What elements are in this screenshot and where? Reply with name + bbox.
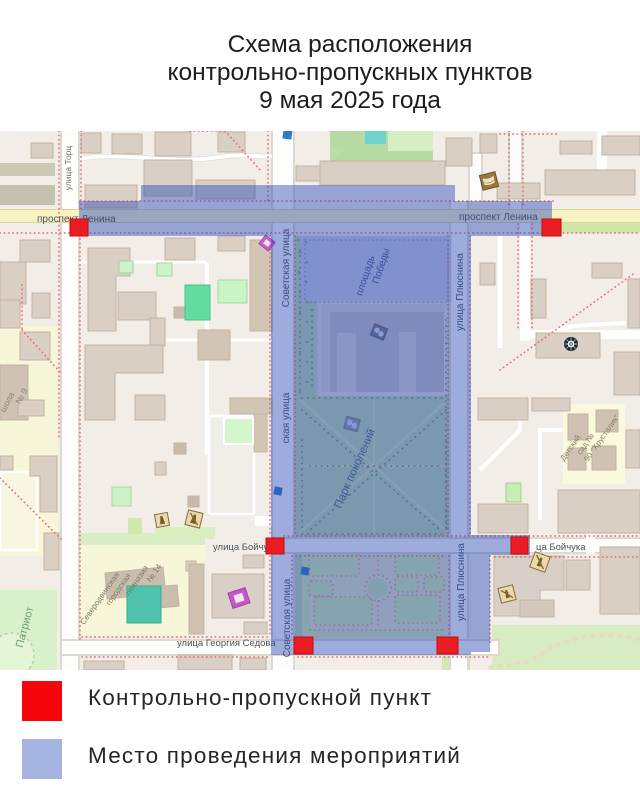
svg-text:улица Георгия Седова: улица Георгия Седова xyxy=(177,638,276,649)
svg-text:ца Бойчука: ца Бойчука xyxy=(536,542,586,553)
svg-text:улица Торц: улица Торц xyxy=(63,146,73,191)
